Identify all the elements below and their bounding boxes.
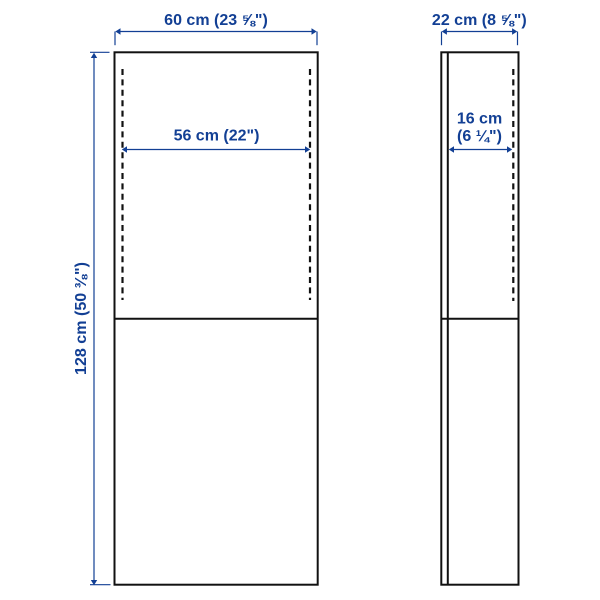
svg-text:(6 ¼"): (6 ¼") bbox=[457, 128, 502, 145]
svg-text:16 cm: 16 cm bbox=[457, 110, 502, 127]
svg-text:128 cm (50 ⅜"): 128 cm (50 ⅜") bbox=[73, 262, 90, 375]
svg-text:60 cm (23 ⅝"): 60 cm (23 ⅝") bbox=[164, 12, 268, 29]
svg-text:22 cm (8 ⅝"): 22 cm (8 ⅝") bbox=[432, 12, 527, 29]
svg-text:56 cm (22"): 56 cm (22") bbox=[174, 127, 260, 144]
